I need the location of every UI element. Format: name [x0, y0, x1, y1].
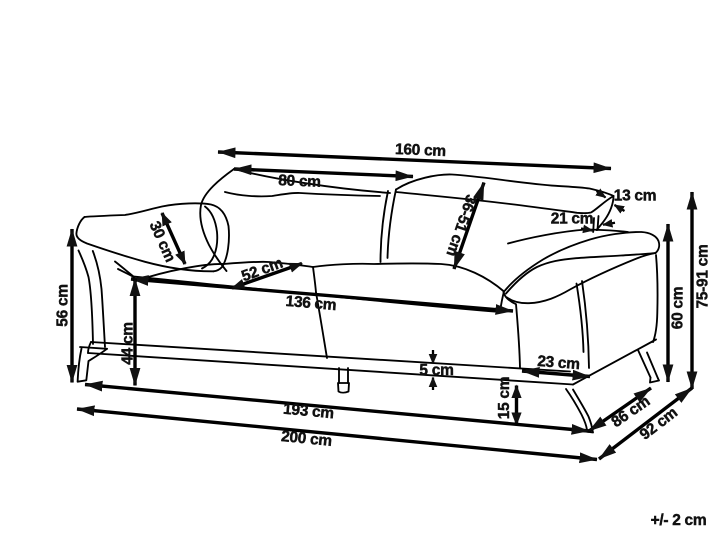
- svg-text:44 cm: 44 cm: [120, 322, 137, 364]
- svg-text:23 cm: 23 cm: [537, 353, 581, 373]
- svg-text:80 cm: 80 cm: [278, 172, 321, 191]
- svg-text:+/- 2 cm: +/- 2 cm: [651, 512, 707, 529]
- svg-text:160 cm: 160 cm: [395, 141, 446, 160]
- svg-text:136 cm: 136 cm: [285, 293, 337, 314]
- svg-text:75-91 cm: 75-91 cm: [695, 245, 712, 309]
- svg-text:52 cm: 52 cm: [239, 255, 285, 285]
- svg-text:56 cm: 56 cm: [55, 284, 72, 326]
- svg-text:5 cm: 5 cm: [419, 362, 453, 379]
- svg-text:36-51 cm: 36-51 cm: [443, 192, 480, 258]
- svg-text:193 cm: 193 cm: [282, 401, 334, 423]
- svg-text:15 cm: 15 cm: [496, 377, 513, 419]
- svg-text:13 cm: 13 cm: [614, 188, 656, 205]
- svg-text:60 cm: 60 cm: [670, 287, 687, 329]
- svg-text:200 cm: 200 cm: [280, 428, 332, 450]
- svg-text:21 cm: 21 cm: [551, 211, 593, 228]
